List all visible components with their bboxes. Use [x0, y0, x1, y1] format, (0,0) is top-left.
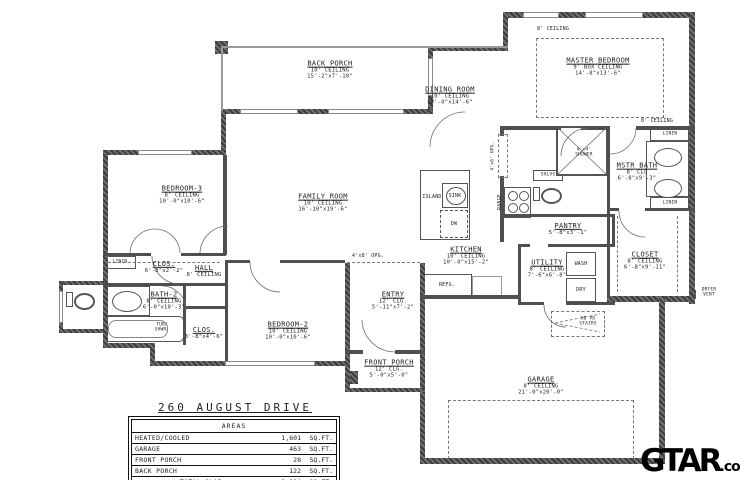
room-label-master-closet: CLOSET8' CEILING6'-8"x9'-11"	[624, 251, 666, 272]
room-label-pantry: PANTRY5'-8"x3'-1"	[549, 222, 588, 236]
dryer-vent-label: DRYERVENT	[702, 288, 717, 299]
room-label-bedroom-2: BEDROOM-210' CEILING10'-0"x10'-6"	[265, 321, 311, 342]
room-label-dining-room: DINING ROOM10' CEILING10'-0"x14'-6"	[425, 86, 475, 107]
room-label-bedroom-3: BEDROOM-38' CEILING10'-0"x10'-6"	[159, 185, 205, 206]
room-label-closet-hall: CLOS.3'-8"x4'-6"	[185, 326, 224, 340]
tub-label: TUB/SHWR.	[155, 323, 170, 334]
stairs-label: HD PDSTAIRS	[579, 317, 596, 328]
room-label-utility: UTILITY8' CEILING7'-6"x6'-8"	[528, 259, 567, 280]
room-label-kitchen: KITCHEN10' CEILING10'-0"x15'-2"	[443, 246, 489, 267]
room-label-closet-bed3: CLOS.6'-8"x2'-2"	[145, 260, 184, 274]
range-label: RANGE	[497, 194, 503, 210]
linen-label: LINEN	[663, 131, 678, 136]
ceiling-note: 8' CEILING	[641, 118, 673, 124]
sink-label: SINK	[449, 193, 462, 199]
floor-plan: BACK PORCH10' CEILING15'-2"x7'-10" MASTE…	[0, 0, 740, 480]
dishwasher-label: DW	[451, 221, 457, 227]
room-label-entry: ENTRY12' CLG.5'-11"x7'-2"	[372, 291, 414, 312]
washer-label: WASH	[575, 261, 588, 267]
opening-master-label: 4'x8' OPG.	[490, 141, 495, 170]
room-label-garage: GARAGE8' CEILING21'-0"x20'-0"	[518, 376, 564, 397]
island-label: ISLAND	[422, 194, 441, 200]
room-label-front-porch: FRONT PORCH12' CLG.5'-0"x5'-0"	[364, 359, 414, 380]
gtar-logo: GTAR.com	[640, 443, 740, 479]
room-label-hall: HALL8' CEILING	[186, 264, 221, 278]
opening-entry-label: 4'x8' OPG.	[352, 253, 384, 259]
shelves-label: SHLVS	[541, 172, 556, 177]
room-label-back-porch: BACK PORCH10' CEILING15'-2"x7'-10"	[307, 60, 353, 81]
linen-label: LINEN	[663, 200, 678, 205]
linen-label: LINEN	[113, 259, 128, 264]
room-label-family-room: FAMILY ROOM10' CEILING16'-10"x19'-6"	[298, 193, 348, 214]
room-label-bath-2: BATH-28' CEILING6'-0"x10'-3"	[143, 291, 185, 312]
dryer-label: DRY	[576, 287, 586, 293]
ceiling-note: 8' CEILING	[537, 26, 569, 32]
room-label-master-bedroom: MASTER BEDROOM9' BOX CEILING14'-8"x13'-6…	[566, 57, 629, 78]
refrigerator-label: REFG.	[439, 282, 455, 288]
room-label-mstr-bath: MSTR BATH8' CLG6'-8"x9'-3"	[617, 162, 658, 183]
shower-label: 4'x4'SHOWER	[575, 148, 592, 159]
